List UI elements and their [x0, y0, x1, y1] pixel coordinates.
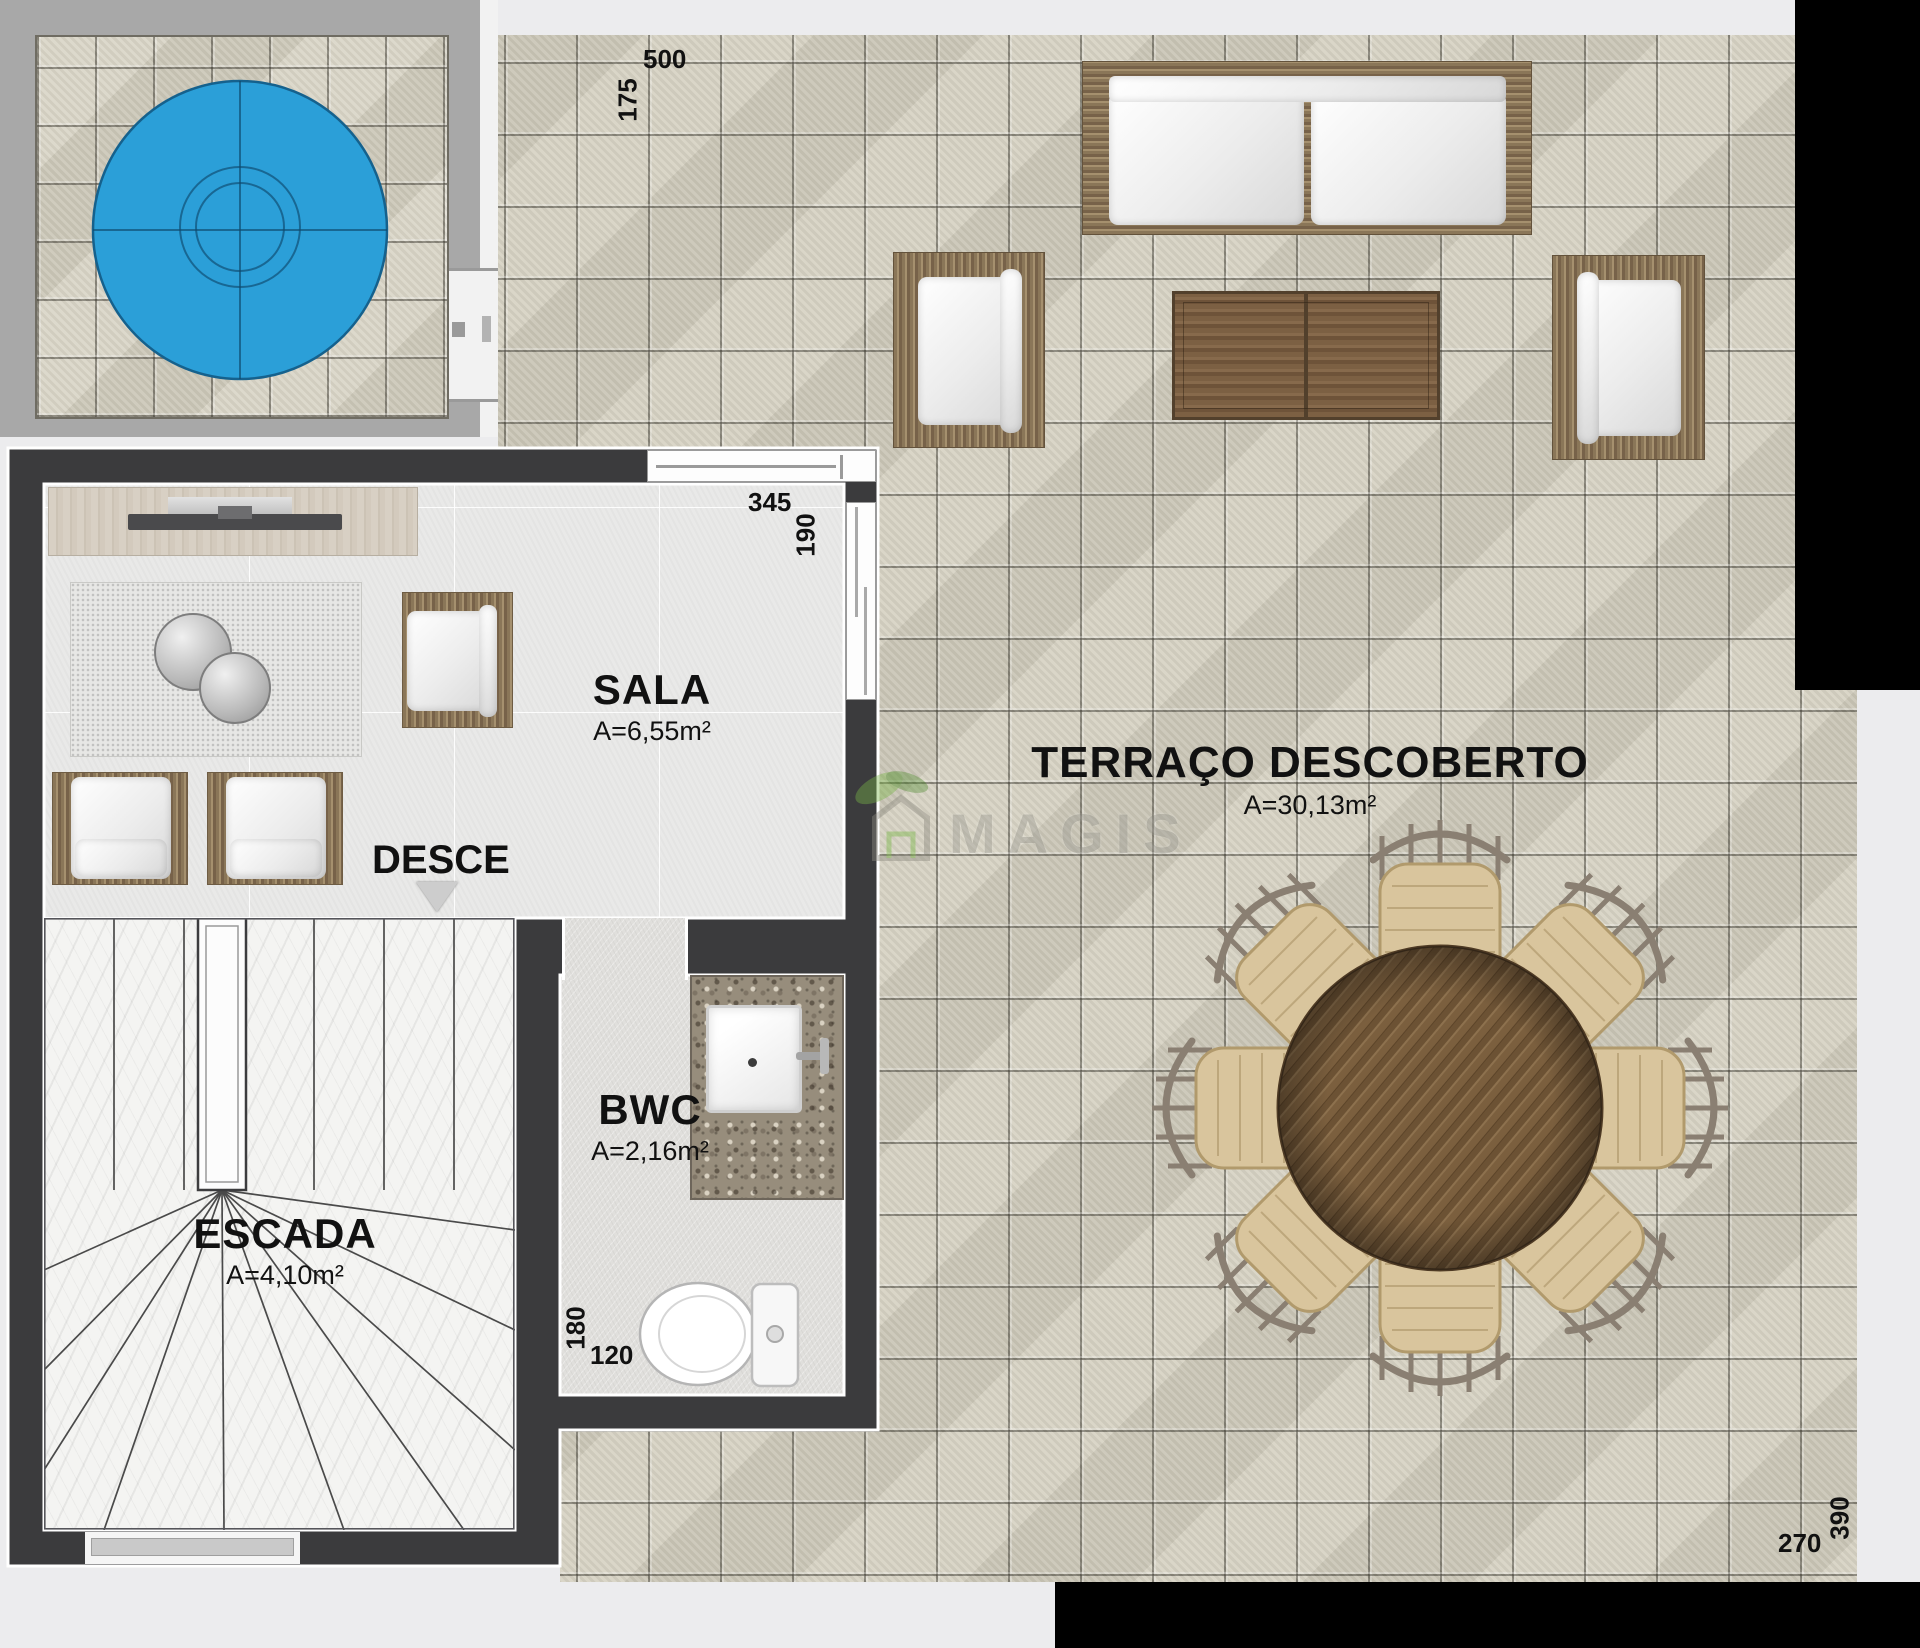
seat-cushion	[75, 839, 167, 877]
terrace-armchair	[1552, 255, 1705, 460]
sink-faucet-handle-icon	[820, 1038, 829, 1074]
seat-cushion	[230, 839, 322, 877]
room-area: A=6,55m²	[593, 716, 711, 747]
window-pane-line	[855, 507, 858, 617]
room-name: BWC	[591, 1088, 709, 1132]
armrest	[1000, 269, 1022, 433]
tv-stand	[218, 506, 252, 519]
table-inner-line	[1183, 302, 1429, 409]
escada-label: ESCADA A=4,10m²	[193, 1212, 376, 1291]
sink-drain	[748, 1058, 757, 1067]
bwc-door-opening	[562, 918, 688, 980]
room-name: ESCADA	[193, 1212, 376, 1256]
terraco-label: TERRAÇO DESCOBERTO A=30,13m²	[1031, 740, 1588, 821]
room-area: A=30,13m²	[1031, 790, 1588, 821]
room-area: A=2,16m²	[591, 1136, 709, 1167]
sala-armchair	[402, 592, 513, 728]
dim-120: 120	[590, 1340, 633, 1371]
door-leaf	[91, 1538, 294, 1556]
terrace-sofa	[1082, 61, 1532, 235]
sala-armchair	[52, 772, 188, 885]
dim-180: 180	[561, 1306, 592, 1349]
dim-175: 175	[613, 78, 644, 121]
descend-arrow-icon	[416, 882, 458, 912]
sala-side-window	[846, 502, 876, 700]
dim-390: 390	[1825, 1496, 1856, 1539]
dining-set	[1130, 800, 1750, 1420]
side-table	[199, 652, 271, 724]
toilet	[630, 1272, 810, 1397]
sofa-back-cushion	[1109, 76, 1506, 102]
sala-armchair	[207, 772, 343, 885]
stairs-direction-label: DESCE	[372, 838, 510, 883]
dim-345: 345	[748, 487, 791, 518]
room-name: SALA	[593, 668, 711, 712]
armrest	[1577, 272, 1599, 444]
sofa-cushion	[1109, 92, 1304, 225]
terrace-coffee-table	[1172, 291, 1440, 420]
bwc-label: BWC A=2,16m²	[591, 1088, 709, 1167]
room-area: A=4,10m²	[193, 1260, 376, 1291]
window-pane-line	[864, 587, 867, 695]
sala-top-window	[647, 450, 876, 482]
window-mullion	[840, 455, 843, 479]
dim-500: 500	[643, 44, 686, 75]
dim-190: 190	[791, 513, 822, 556]
room-name: TERRAÇO DESCOBERTO	[1031, 740, 1588, 786]
sofa-cushion	[1311, 92, 1506, 225]
window-mullion	[656, 465, 836, 468]
armrest	[479, 605, 497, 717]
floor-plan: MAGIS SALA A=6,55m² TERRAÇO DESCOBERTO A…	[0, 0, 1920, 1648]
dim-270: 270	[1778, 1528, 1821, 1559]
bottom-door	[85, 1532, 300, 1564]
sala-label: SALA A=6,55m²	[593, 668, 711, 747]
terrace-armchair	[893, 252, 1045, 448]
